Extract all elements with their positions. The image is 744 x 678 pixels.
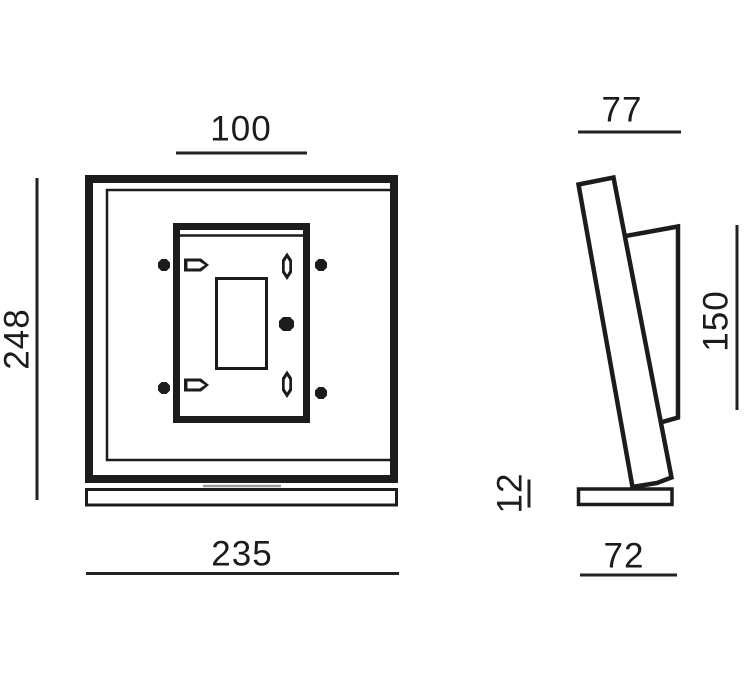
side-view (579, 178, 679, 505)
dim-label-overall-height: 248 (0, 308, 35, 369)
screw-hole-dot (315, 387, 327, 399)
screw-hole-dot (315, 259, 327, 271)
plate-corner-dot (300, 225, 305, 230)
technical-drawing-canvas: 100 248 235 77 150 12 72 (0, 0, 744, 678)
dim-label-plate-width: 100 (210, 112, 271, 147)
plate-cutout (217, 279, 267, 369)
plate-corner-dot (300, 416, 305, 421)
screw-hole-dot (158, 259, 170, 271)
dim-label-depth-top: 77 (602, 93, 643, 128)
side-base-strip (579, 489, 673, 505)
front-base-strip (87, 490, 397, 506)
plate-corner-dot (177, 225, 182, 230)
dim-label-base-thickness: 12 (493, 473, 528, 514)
dim-label-overall-width: 235 (211, 537, 272, 572)
dim-label-base-depth: 72 (604, 539, 645, 574)
screw-hole-dot (158, 382, 170, 394)
front-view (87, 179, 397, 505)
dim-label-bracket-height: 150 (699, 290, 734, 351)
center-fixing-dot (279, 317, 294, 331)
plate-corner-dot (177, 416, 182, 421)
